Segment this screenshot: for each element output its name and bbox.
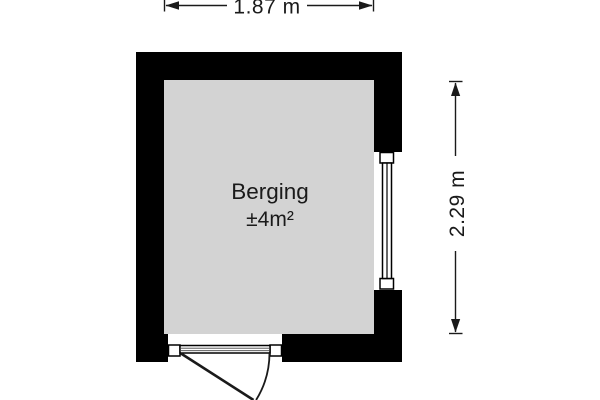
dim-height-arrow-up-icon [451,83,460,97]
window [374,152,402,290]
dimension-width: 1.87 m [165,0,374,19]
dim-width-arrow-right-icon [359,1,373,10]
door-panel [180,346,270,354]
room-area-label: ±4m² [246,208,294,231]
door-frame-right [270,345,282,356]
window-frame-top [380,153,394,164]
door [168,334,282,400]
dim-height-label: 2.29 m [446,170,469,237]
dim-width-arrow-left-icon [166,1,180,10]
dim-width-label: 1.87 m [233,0,300,19]
room-name-label: Berging [231,179,309,204]
room-floor [164,80,374,334]
floorplan-canvas: 1.87 m 2.29 m Berging ±4m² [0,0,600,400]
dim-height-arrow-down-icon [451,319,460,333]
dimension-height: 2.29 m [446,82,469,334]
window-frame-bottom [380,279,394,290]
floorplan-page: 1.87 m 2.29 m Berging ±4m² [0,0,600,400]
door-frame-left [169,345,181,356]
